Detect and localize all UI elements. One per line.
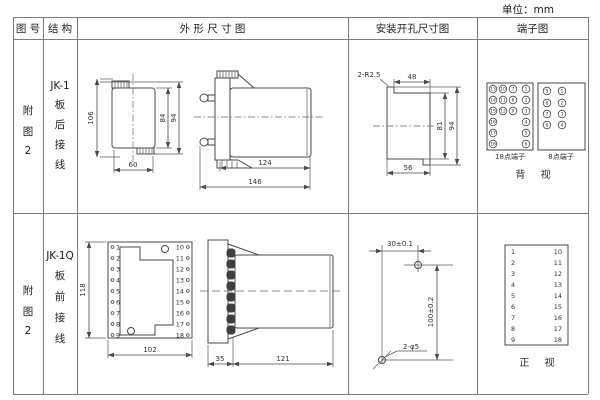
pin: 12 [554, 270, 562, 278]
jk1q-front-view: 1 2 3 4 5 6 7 8 9 10 11 12 13 14 15 16 1… [79, 242, 192, 358]
wiring-char: 前 [55, 289, 66, 304]
outline-drawing-jk1: 106 84 94 60 [78, 41, 347, 211]
pin: 6 [525, 142, 528, 148]
pin: 18 [490, 142, 496, 148]
terminal-diagram-jk1q: 1 2 3 4 5 6 7 8 9 10 11 12 13 14 15 16 1… [478, 214, 587, 392]
pin: 14 [554, 292, 562, 300]
terminal-diagram-jk1: 13 14 15 16 17 18 10 11 12 7 8 9 1 2 3 4… [478, 41, 587, 211]
datasheet-page: 单位：mm 图 号 结 构 外 形 尺 寸 图 安装开孔尺寸图 端子图 附 图 … [0, 0, 600, 400]
header-figure: 图 号 [13, 17, 43, 39]
pin: 12 [500, 109, 506, 115]
pin: 1 [116, 244, 120, 252]
dim-hole-note: 2-φ5 [403, 343, 419, 351]
figure-char: 2 [25, 145, 32, 157]
pin: 14 [176, 288, 184, 296]
wiring-char: 接 [55, 137, 66, 152]
front-pins-right: 10 11 12 13 14 15 16 17 18 [176, 244, 189, 340]
pin: 15 [176, 299, 184, 307]
pin: 10 [500, 87, 506, 93]
wiring-char: 线 [55, 331, 66, 346]
pin: 2 [525, 98, 528, 104]
terminal-grid-8: 5 6 7 8 1 2 3 4 [543, 87, 566, 129]
pin: 6 [511, 303, 515, 311]
pin: 1 [561, 89, 564, 95]
dim-35: 35 [216, 355, 225, 363]
table-border-left [13, 17, 14, 394]
figure-char: 图 [23, 304, 34, 319]
pin: 1 [525, 87, 528, 93]
model-label: JK-1 [50, 80, 69, 92]
header-structure: 结 构 [43, 17, 77, 39]
jk1q-side-view: 35 121 [200, 240, 340, 367]
pin: 7 [512, 87, 515, 93]
pin: 4 [511, 281, 515, 289]
pin: 11 [554, 259, 562, 267]
pin: 3 [525, 109, 528, 115]
dim-102: 102 [143, 346, 156, 354]
outline-drawing-jk1q: 1 2 3 4 5 6 7 8 9 10 11 12 13 14 15 16 1… [78, 214, 347, 392]
pin: 4 [525, 120, 528, 126]
pin: 4 [116, 277, 120, 285]
pin: 5 [546, 89, 549, 95]
pin: 8 [511, 325, 515, 333]
pin: 10 [176, 244, 184, 252]
pin: 17 [490, 131, 496, 137]
dim-81: 81 [436, 122, 444, 131]
pin: 14 [490, 98, 496, 104]
figure-char: 附 [23, 283, 34, 298]
dim-48: 48 [408, 73, 417, 81]
figure-cell-row1: 附 图 2 [13, 103, 43, 157]
figure-char: 图 [23, 124, 34, 139]
pin: 9 [116, 332, 120, 340]
pin: 16 [490, 120, 496, 126]
pin: 10 [554, 248, 562, 256]
jk1-front-view: 106 84 94 60 [87, 74, 183, 173]
jk1-side-view: 124 146 [194, 71, 324, 190]
pin: 9 [511, 336, 515, 344]
pin: 13 [176, 277, 184, 285]
pin: 4 [561, 123, 564, 129]
pin: 6 [546, 101, 549, 107]
dim-60: 60 [129, 161, 138, 169]
pin: 18 [176, 332, 184, 340]
pin: 15 [554, 303, 562, 311]
pin: 16 [554, 314, 562, 322]
table-border-right [588, 17, 589, 394]
pin: 17 [176, 321, 184, 329]
dim-118: 118 [79, 283, 87, 296]
pin: 13 [490, 87, 496, 93]
structure-cell-row1: JK-1 板 后 接 线 [43, 80, 77, 172]
terminal-18-label: 18点端子 [495, 152, 525, 161]
pin: 11 [176, 255, 184, 263]
pin: 18 [554, 336, 562, 344]
table-border-bottom [13, 394, 588, 395]
dim-84: 84 [159, 113, 167, 122]
pin: 1 [511, 248, 515, 256]
wiring-char: 线 [55, 157, 66, 172]
dim-radius-note: 2-R2.5 [358, 71, 381, 79]
pin: 13 [554, 281, 562, 289]
pin: 5 [511, 292, 515, 300]
pin: 17 [554, 325, 562, 333]
header-mounting: 安装开孔尺寸图 [348, 17, 477, 39]
dim-121: 121 [276, 355, 289, 363]
pin: 11 [500, 98, 506, 104]
figure-char: 2 [25, 325, 32, 337]
dim-56: 56 [404, 164, 413, 172]
pin: 2 [561, 101, 564, 107]
pin: 2 [511, 259, 515, 267]
model-label: JK-1Q [46, 250, 74, 262]
pin: 9 [512, 109, 515, 115]
dim-124: 124 [258, 159, 272, 167]
pin: 8 [546, 123, 549, 129]
pin: 12 [176, 266, 184, 274]
wiring-char: 接 [55, 310, 66, 325]
pin: 7 [511, 314, 515, 322]
unit-label: 单位：mm [502, 2, 554, 17]
dim-100: 100±0.2 [427, 297, 435, 327]
dim-94b: 94 [448, 121, 456, 130]
pin: 16 [176, 310, 184, 318]
terminal-list-left: 1 2 3 4 5 6 7 8 9 [511, 248, 515, 344]
pin: 7 [546, 112, 549, 118]
header-outline: 外 形 尺 寸 图 [77, 17, 348, 39]
pin: 5 [525, 131, 528, 137]
pin: 15 [490, 109, 496, 115]
mounting-drawing-jk1q: 30±0.1 100±0.2 2-φ5 [349, 214, 476, 392]
mounting-drawing-jk1: 48 81 94 56 2-R2.5 [349, 41, 476, 211]
terminal-list-right: 10 11 12 13 14 15 16 17 18 [554, 248, 562, 344]
dim-106: 106 [87, 111, 95, 125]
pin: 7 [116, 310, 120, 318]
dim-94: 94 [170, 113, 178, 122]
pin: 3 [511, 270, 515, 278]
figure-cell-row2: 附 图 2 [13, 283, 43, 337]
wiring-char: 板 [55, 268, 66, 283]
pin: 8 [512, 98, 515, 104]
pin: 3 [561, 112, 564, 118]
pin: 6 [116, 299, 120, 307]
structure-cell-row2: JK-1Q 板 前 接 线 [43, 250, 77, 346]
wiring-char: 后 [55, 117, 66, 132]
terminal-8-label: 8点端子 [548, 152, 573, 161]
header-terminal: 端子图 [477, 17, 588, 39]
wiring-char: 板 [55, 97, 66, 112]
pin: 8 [116, 321, 120, 329]
rear-view-label: 背 视 [515, 168, 556, 181]
dim-30: 30±0.1 [387, 240, 413, 248]
pin: 2 [116, 255, 120, 263]
pin: 3 [116, 266, 120, 274]
dim-146: 146 [248, 178, 262, 186]
header-divider [13, 39, 588, 40]
front-view-label: 正 视 [519, 356, 560, 369]
figure-char: 附 [23, 103, 34, 118]
front-pins-left: 1 2 3 4 5 6 7 8 9 [111, 244, 120, 340]
terminal-grid-18: 13 14 15 16 17 18 10 11 12 7 8 9 1 2 3 4… [489, 85, 530, 148]
pin: 5 [116, 288, 120, 296]
